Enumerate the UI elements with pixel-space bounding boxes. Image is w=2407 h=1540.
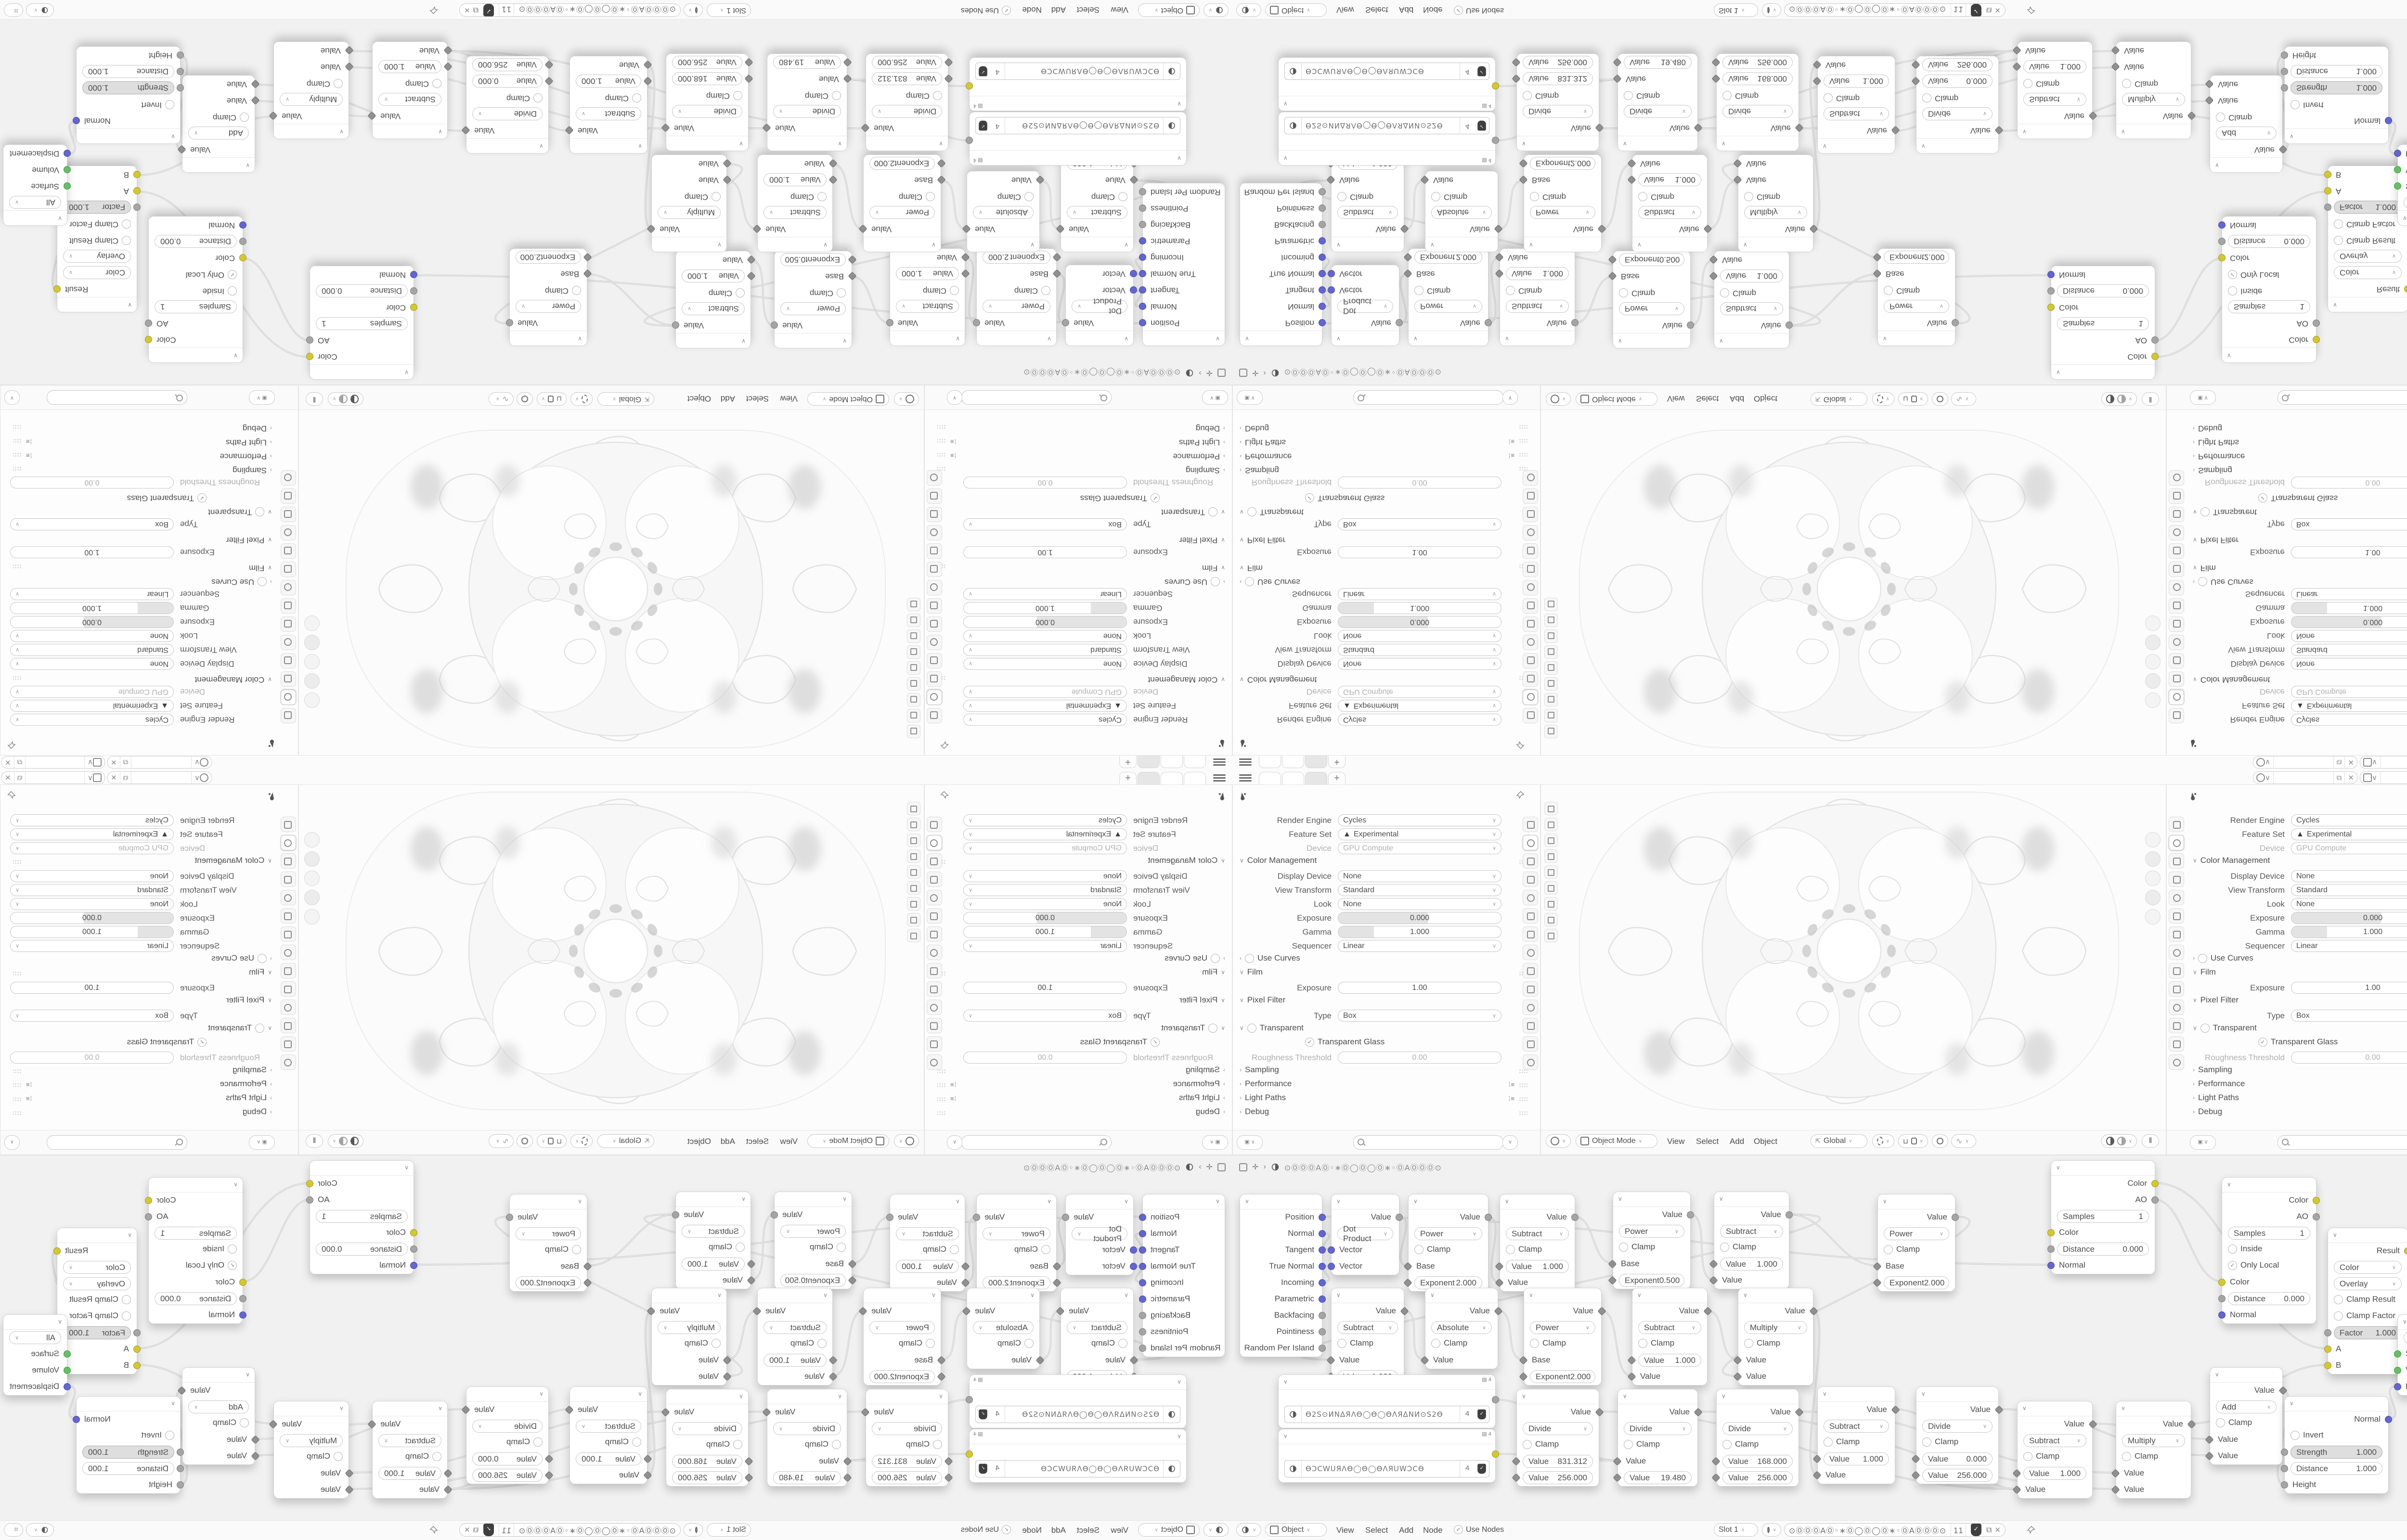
- cursor-icon[interactable]: [907, 818, 920, 831]
- copy-icon[interactable]: ⧉: [2334, 772, 2345, 783]
- falloff-icon[interactable]: ∿∨: [489, 392, 514, 406]
- output-socket[interactable]: [1319, 303, 1326, 310]
- section-header[interactable]: ∨Film: [1202, 967, 1225, 977]
- scene-name[interactable]: [131, 757, 191, 768]
- checkbox-clamp[interactable]: Clamp: [685, 192, 721, 202]
- operation-dropdown[interactable]: Divide∨: [1722, 1422, 1793, 1435]
- node-ao1[interactable]: ∨Color AO Samples 1Color Distance 0.000N…: [2051, 1160, 2155, 1274]
- output-socket[interactable]: [2385, 1416, 2392, 1423]
- section-header[interactable]: ›Debug: [1240, 1107, 1269, 1116]
- input-socket[interactable]: [2324, 187, 2331, 194]
- checkbox-clamp[interactable]: Clamp: [213, 1418, 249, 1427]
- checkbox-invert[interactable]: Invert: [141, 100, 174, 110]
- operation-dropdown[interactable]: Subtract∨: [896, 300, 959, 313]
- zoom-icon[interactable]: [2145, 851, 2161, 867]
- checkbox-clamp[interactable]: Clamp: [1091, 192, 1127, 202]
- preset-list-icon[interactable]: ⁞≡: [26, 452, 32, 459]
- node-powC[interactable]: ∨Value Power∨ ClampBase Exponent 2.000: [1877, 248, 1955, 346]
- output-socket[interactable]: [1139, 270, 1146, 277]
- input-socket[interactable]: [133, 1362, 141, 1369]
- output-socket[interactable]: [1319, 1263, 1326, 1270]
- filter-dropdown[interactable]: ▣ ∨: [249, 390, 275, 405]
- node-ao1[interactable]: ∨Color AO Samples 1Color Distance 0.000N…: [310, 266, 414, 380]
- input-socket[interactable]: [239, 254, 246, 261]
- operation-dropdown[interactable]: Absolute∨: [1431, 1321, 1492, 1334]
- menu-select[interactable]: Select: [1077, 5, 1100, 14]
- node-subR2a[interactable]: ∨Value Subtract∨ ClampValue Value 1.000: [1061, 154, 1134, 252]
- slot-dropdown[interactable]: Slot 1∧: [1714, 3, 1758, 17]
- checkbox-clamp[interactable]: Clamp: [1638, 1338, 1674, 1348]
- output-socket[interactable]: [886, 1214, 893, 1221]
- filter-dropdown[interactable]: ▣ ∨: [1202, 1135, 1228, 1150]
- viewlayer-icon[interactable]: [281, 653, 296, 668]
- output-socket[interactable]: [1485, 319, 1492, 326]
- close-icon[interactable]: ✕: [108, 772, 120, 783]
- users-count[interactable]: 11: [1951, 4, 1966, 16]
- node-powA[interactable]: ∨Value Power∨ ClampBase Exponent 2.000: [1408, 248, 1488, 346]
- checkbox-clamp[interactable]: Clamp: [2122, 79, 2158, 89]
- object-icon[interactable]: [2169, 926, 2184, 942]
- copy-icon[interactable]: ⧉: [120, 757, 131, 768]
- input-socket[interactable]: [64, 1383, 71, 1390]
- output-socket[interactable]: [1319, 254, 1326, 261]
- texture-icon[interactable]: [1523, 470, 1538, 486]
- operation-dropdown[interactable]: Divide∨: [472, 107, 543, 120]
- node-dot[interactable]: ∨Value Dot Product∨Vector Vector: [1331, 1194, 1399, 1275]
- shield-icon[interactable]: ✓: [1971, 4, 1981, 16]
- node-ao2[interactable]: ∨Color AO Samples 1 Inside ✓Only LocalCo…: [2222, 216, 2316, 363]
- checkbox-clamp[interactable]: Clamp: [605, 1437, 641, 1447]
- value-field[interactable]: Value 1.000: [378, 1467, 441, 1480]
- output-socket[interactable]: [306, 1196, 313, 1204]
- section-header[interactable]: ∨Transparent: [1240, 507, 1304, 517]
- modifiers-icon[interactable]: [1523, 945, 1538, 960]
- value-field[interactable]: Samples 1: [316, 317, 408, 330]
- select-box-icon[interactable]: [907, 725, 920, 738]
- shield-icon[interactable]: ✓: [979, 1464, 987, 1474]
- shield-icon[interactable]: ✓: [1477, 66, 1486, 77]
- search-input[interactable]: [2278, 390, 2407, 405]
- operation-dropdown[interactable]: Divide∨: [1624, 1422, 1692, 1435]
- datablock-selector[interactable]: Ɵ2S⊙ИNΔЯΛƟ◯Ɵ◯ƟΛЯΔNИ⊙S2Ɵ 4 ✓: [1284, 117, 1489, 134]
- render-icon[interactable]: [281, 690, 296, 705]
- input-socket[interactable]: [64, 150, 71, 157]
- input-socket[interactable]: [177, 84, 184, 91]
- input-socket[interactable]: [2047, 304, 2055, 311]
- nav-gizmo-icon[interactable]: [2145, 832, 2161, 847]
- editor-type-button[interactable]: ∨: [1236, 1523, 1261, 1537]
- output-icon[interactable]: [1523, 671, 1538, 687]
- section-header[interactable]: ∨Color Management: [1148, 856, 1225, 865]
- value-field-roughness-threshold[interactable]: 0.00: [10, 1052, 174, 1064]
- browse-material-button[interactable]: ∨: [1762, 1523, 1781, 1537]
- checkbox-transparent-glass[interactable]: ✓Transparent Glass: [2258, 493, 2338, 503]
- node-bump[interactable]: ∨Normal Invert Strength 1.000 Distance 1…: [2284, 46, 2389, 144]
- dropdown-device[interactable]: GPU Compute∨: [963, 686, 1127, 698]
- operation-dropdown[interactable]: Overlay∨: [2334, 1277, 2402, 1290]
- section-header[interactable]: ›Sampling: [1186, 1065, 1225, 1075]
- rotate-icon[interactable]: [907, 677, 920, 691]
- checkbox-only-local[interactable]: ✓Only Local: [2228, 1260, 2279, 1270]
- render-icon[interactable]: [927, 835, 942, 850]
- slot-dropdown[interactable]: Slot 1∧: [1714, 1523, 1758, 1537]
- node-db2[interactable]: ∨▤ 4 ƟƆCWUЯΛƟ◯Ɵ◯ƟΛЯUWƆCƟ 4 ✓: [969, 57, 1187, 111]
- input-socket[interactable]: [177, 51, 184, 59]
- dropdown-type[interactable]: Box∨: [2291, 1010, 2407, 1022]
- value-field[interactable]: Samples 1: [2228, 1227, 2310, 1240]
- checkbox-clamp-result[interactable]: Clamp Result: [2334, 1295, 2395, 1304]
- copy-icon[interactable]: ⧉: [2334, 757, 2345, 768]
- slot-dropdown[interactable]: Slot 1∧: [707, 1523, 751, 1537]
- value-field[interactable]: Value 831.312: [1523, 72, 1593, 85]
- mode-dropdown[interactable]: Object Mode∨: [1576, 1134, 1657, 1148]
- operation-dropdown[interactable]: Subtract∨: [1506, 300, 1569, 313]
- workspace-tab[interactable]: [1259, 772, 1281, 785]
- checkbox-clamp[interactable]: Clamp: [805, 1439, 841, 1449]
- shield-icon[interactable]: ✓: [979, 66, 987, 77]
- menu-node[interactable]: Node: [1022, 1526, 1042, 1535]
- drag-grip-icon[interactable]: [937, 452, 946, 457]
- copy-icon[interactable]: ⧉: [473, 5, 479, 15]
- workspace-tab[interactable]: [1184, 772, 1206, 785]
- section-header[interactable]: ›Sampling: [2193, 465, 2232, 475]
- measure-icon[interactable]: [907, 614, 920, 627]
- drag-grip-icon[interactable]: [1519, 438, 1527, 443]
- datablock-selector[interactable]: ƟƆCWUЯΛƟ◯Ɵ◯ƟΛЯUWƆCƟ 4 ✓: [1284, 63, 1489, 80]
- checkbox-only-local[interactable]: ✓Only Local: [186, 270, 237, 280]
- input-socket[interactable]: [2218, 221, 2226, 229]
- menu-select[interactable]: Select: [1696, 1137, 1719, 1146]
- use-nodes-checkbox[interactable]: ✓Use Nodes: [1454, 6, 1504, 15]
- node-div2[interactable]: ∨Value Divide∨ ClampValue Value 19.480: [1618, 1389, 1698, 1487]
- perspective-icon[interactable]: [304, 616, 320, 631]
- operation-dropdown[interactable]: Multiply∨: [658, 206, 721, 219]
- node-mul1[interactable]: ∨Value Multiply∨ ClampValue Value: [2116, 41, 2191, 139]
- shield-icon[interactable]: ✓: [483, 4, 494, 16]
- value-field[interactable]: Strength 1.000: [2291, 81, 2382, 94]
- magnet-icon[interactable]: ⊔∨: [537, 392, 567, 406]
- dropdown-look[interactable]: None∨: [2291, 630, 2407, 642]
- checkbox-transparent-glass[interactable]: ✓Transparent Glass: [1305, 493, 1385, 503]
- value-field[interactable]: Exponent 0.500: [1619, 253, 1684, 266]
- node-ao2[interactable]: ∨Color AO Samples 1 Inside ✓Only LocalCo…: [148, 216, 243, 363]
- section-header[interactable]: ∨Pixel Filter: [2193, 535, 2239, 545]
- checkbox-inside[interactable]: Inside: [2228, 286, 2262, 296]
- section-header[interactable]: ›Debug: [2193, 423, 2222, 433]
- data-icon[interactable]: [281, 1018, 296, 1033]
- filter-dropdown[interactable]: ▣ ∨: [1237, 1135, 1263, 1150]
- node-powB[interactable]: ∨Value Power∨ ClampBase Exponent 0.500: [774, 1192, 852, 1289]
- value-field[interactable]: Samples 1: [316, 1210, 408, 1223]
- object-icon[interactable]: [1523, 926, 1538, 942]
- pan-icon[interactable]: [304, 654, 320, 669]
- dropdown-render-engine[interactable]: Cycles∨: [10, 814, 174, 826]
- operation-dropdown[interactable]: Subtract∨: [576, 107, 641, 120]
- dropdown-view-transform[interactable]: Standard∨: [10, 884, 174, 896]
- close-icon[interactable]: ✕: [108, 757, 120, 768]
- operation-dropdown[interactable]: Color∨: [63, 1261, 131, 1274]
- menu-icon[interactable]: [1239, 758, 1252, 767]
- dropdown-sequencer[interactable]: Linear∨: [2291, 940, 2407, 952]
- section-header[interactable]: ›Performance: [1173, 1079, 1225, 1089]
- value-field-roughness-threshold[interactable]: 0.00: [1338, 476, 1501, 488]
- dropdown-display-device[interactable]: None∨: [963, 870, 1127, 882]
- add-primitive-icon[interactable]: [1544, 929, 1558, 942]
- output-icon[interactable]: [2169, 671, 2184, 687]
- node-div3[interactable]: ∨Value Divide∨ Clamp Value 168.000 Value…: [1716, 53, 1799, 151]
- menu-add[interactable]: Add: [1399, 5, 1413, 14]
- output-socket[interactable]: [966, 1396, 973, 1403]
- output-socket[interactable]: [771, 321, 778, 329]
- value-field[interactable]: Value 256.000: [1722, 56, 1793, 69]
- section-header[interactable]: ∨Color Management: [1240, 675, 1317, 684]
- options-dropdown[interactable]: ∨: [4, 390, 20, 405]
- node-mul1[interactable]: ∨Value Multiply∨ ClampValue Value: [273, 41, 349, 139]
- select-box-icon[interactable]: [907, 802, 920, 815]
- world-icon[interactable]: [281, 908, 296, 924]
- input-socket[interactable]: [2324, 1329, 2331, 1336]
- node-db2[interactable]: ∨▤ 4 ƟƆCWUЯΛƟ◯Ɵ◯ƟΛЯUWƆCƟ 4 ✓: [1278, 57, 1496, 111]
- add-primitive-icon[interactable]: [1544, 598, 1558, 611]
- tool-icon[interactable]: [2169, 708, 2184, 723]
- cursor-icon[interactable]: [1544, 818, 1558, 831]
- close-icon[interactable]: ✕: [2, 772, 14, 783]
- object-icon[interactable]: [927, 926, 942, 942]
- shader-node-editor[interactable]: ✛ › ⊙ⓄⓄⓄAⓄ◦∗Ⓞ◯Ⓞ◯Ⓞ∗◦ⓄAⓄⓄⓄ⊙ ∨Position Norm…: [0, 1155, 1232, 1540]
- magnet-icon[interactable]: ⊔∨: [1898, 1134, 1928, 1148]
- checkbox-transparent-glass[interactable]: ✓Transparent Glass: [127, 493, 207, 503]
- viewlayer-name[interactable]: [25, 772, 84, 783]
- output-socket[interactable]: [1319, 1230, 1326, 1237]
- output-socket[interactable]: [145, 1213, 152, 1220]
- value-field[interactable]: Exponent 0.500: [1619, 1274, 1684, 1287]
- shading-mode-buttons[interactable]: ∨: [2101, 1134, 2137, 1148]
- drag-grip-icon[interactable]: [1519, 1097, 1527, 1102]
- shader-node-editor[interactable]: ✛ › ⊙ⓄⓄⓄAⓄ◦∗Ⓞ◯Ⓞ◯Ⓞ∗◦ⓄAⓄⓄⓄ⊙ ∨Position Norm…: [1232, 1155, 2407, 1540]
- value-field[interactable]: Distance 0.000: [316, 1243, 408, 1256]
- section-header[interactable]: ›Sampling: [233, 465, 272, 475]
- output-socket[interactable]: [1319, 1345, 1326, 1352]
- material-icon[interactable]: [2169, 488, 2184, 504]
- section-header[interactable]: ›Use Curves: [2193, 953, 2253, 963]
- checkbox-clamp[interactable]: Clamp: [1530, 192, 1566, 202]
- checkbox-clamp[interactable]: Clamp: [1337, 1338, 1373, 1348]
- input-socket[interactable]: [1328, 286, 1335, 294]
- output-socket[interactable]: [1139, 1296, 1146, 1303]
- input-socket[interactable]: [1328, 1263, 1335, 1270]
- input-socket[interactable]: [177, 1449, 184, 1456]
- value-field[interactable]: Distance 0.000: [2057, 284, 2149, 297]
- section-header[interactable]: ›Performance: [1173, 451, 1225, 461]
- checkbox-transparent-glass[interactable]: ✓Transparent Glass: [1305, 1037, 1385, 1047]
- checkbox-clamp[interactable]: Clamp: [1638, 192, 1674, 202]
- users-count[interactable]: 11: [499, 1524, 514, 1536]
- operation-dropdown[interactable]: Subtract∨: [1720, 302, 1783, 315]
- output-socket[interactable]: [973, 319, 980, 326]
- operation-dropdown[interactable]: Divide∨: [773, 1422, 841, 1435]
- dropdown-type[interactable]: Box∨: [963, 518, 1127, 530]
- value-field[interactable]: Distance 1.000: [2291, 65, 2382, 78]
- dropdown-view-transform[interactable]: Standard∨: [963, 644, 1127, 656]
- operation-dropdown[interactable]: Subtract∨: [682, 302, 745, 315]
- value-field-gamma[interactable]: 1.000: [2291, 602, 2407, 614]
- operation-dropdown[interactable]: Power∨: [1414, 1227, 1482, 1240]
- world-icon[interactable]: [1523, 616, 1538, 632]
- node-geo[interactable]: ∨Position Normal Tangent True Normal Inc…: [1240, 183, 1322, 346]
- dropdown-view-transform[interactable]: Standard∨: [1338, 644, 1501, 656]
- editor-type-button[interactable]: ∨: [894, 392, 919, 406]
- pin-icon[interactable]: [2027, 1526, 2035, 1534]
- input-socket[interactable]: [177, 1465, 184, 1472]
- operation-dropdown[interactable]: Multiply∨: [2122, 1434, 2185, 1447]
- node-div0[interactable]: ∨Value Divide∨ Clamp Value 0.000 Value 2…: [466, 1386, 549, 1484]
- output-socket[interactable]: [1319, 319, 1326, 326]
- section-header[interactable]: ∨Pixel Filter: [226, 535, 272, 545]
- operation-dropdown[interactable]: Add∨: [188, 127, 249, 140]
- checkbox-inside[interactable]: Inside: [2228, 1244, 2262, 1254]
- snap-target-icon[interactable]: ∨: [570, 392, 593, 406]
- node-mulR2[interactable]: ∨Value Multiply∨ ClampValue Value: [651, 1288, 727, 1386]
- checkbox-clamp[interactable]: Clamp: [906, 91, 942, 101]
- value-field[interactable]: Distance 0.000: [316, 284, 408, 297]
- operation-dropdown[interactable]: Add∨: [2216, 127, 2277, 140]
- add-primitive-icon[interactable]: [907, 598, 920, 611]
- checkbox-clamp[interactable]: Clamp: [706, 1439, 742, 1449]
- value-field[interactable]: Value 1.000: [2023, 60, 2086, 73]
- modifiers-icon[interactable]: [281, 945, 296, 960]
- operation-dropdown[interactable]: Add∨: [188, 1400, 249, 1413]
- output-icon[interactable]: [281, 671, 296, 687]
- zoom-icon[interactable]: [304, 673, 320, 689]
- operation-dropdown[interactable]: Dot Product∨: [1072, 300, 1127, 313]
- viewlayer-selector[interactable]: ∨ ⧉ ✕: [1, 756, 105, 769]
- checkbox-clamp[interactable]: Clamp: [1824, 93, 1860, 103]
- transform-icon[interactable]: [1544, 881, 1558, 895]
- pin-icon[interactable]: [940, 741, 949, 749]
- shader-node-editor[interactable]: ✛ › ⊙ⓄⓄⓄAⓄ◦∗Ⓞ◯Ⓞ◯Ⓞ∗◦ⓄAⓄⓄⓄ⊙ ∨Position Norm…: [0, 0, 1232, 385]
- value-field[interactable]: Value 256.000: [472, 58, 543, 71]
- object-icon[interactable]: [927, 598, 942, 614]
- checkbox-clamp[interactable]: Clamp: [1619, 288, 1655, 298]
- preset-list-icon[interactable]: ⁞≡: [950, 438, 956, 445]
- shading-material-icon[interactable]: [2106, 395, 2114, 403]
- node-powB[interactable]: ∨Value Power∨ ClampBase Exponent 0.500: [774, 251, 852, 348]
- value-field-exposure[interactable]: 1.00: [1338, 546, 1501, 558]
- output-socket[interactable]: [1139, 1214, 1146, 1221]
- magnet-icon[interactable]: ⊔∨: [537, 1134, 567, 1148]
- value-field[interactable]: Value 831.312: [872, 1455, 942, 1468]
- node-db1[interactable]: ∨▤ 4 Ɵ2S⊙ИNΔЯΛƟ◯Ɵ◯ƟΛЯΔNИ⊙S2Ɵ 4 ✓: [1278, 112, 1496, 166]
- value-field[interactable]: Value 1.000: [1824, 75, 1889, 88]
- world-icon[interactable]: [2169, 908, 2184, 924]
- section-header[interactable]: ›Use Curves: [1240, 953, 1300, 963]
- operation-dropdown[interactable]: Subtract∨: [576, 1420, 641, 1433]
- node-ao2[interactable]: ∨Color AO Samples 1 Inside ✓Only LocalCo…: [2222, 1177, 2316, 1324]
- shading-rendered-icon[interactable]: [2117, 395, 2125, 403]
- operation-dropdown[interactable]: Multiply∨: [280, 93, 343, 106]
- section-header[interactable]: ›Sampling: [1186, 465, 1225, 475]
- data-icon[interactable]: [2169, 1018, 2184, 1033]
- dropdown-sequencer[interactable]: Linear∨: [963, 940, 1127, 952]
- material-icon[interactable]: [1523, 1036, 1538, 1052]
- value-field-exposure[interactable]: 0.000: [10, 616, 174, 628]
- output-socket[interactable]: [1139, 1312, 1146, 1319]
- section-header[interactable]: ∨Color Management: [2193, 675, 2270, 684]
- menu-node[interactable]: Node: [1022, 5, 1042, 14]
- render-icon[interactable]: [1523, 690, 1538, 705]
- dropdown-view-transform[interactable]: Standard∨: [2291, 884, 2407, 896]
- filter-dropdown[interactable]: ▣ ∨: [249, 1135, 275, 1150]
- data-icon[interactable]: [927, 507, 942, 522]
- operation-dropdown[interactable]: Power∨: [780, 302, 846, 315]
- mode-dropdown[interactable]: Object Mode∨: [807, 1134, 889, 1148]
- editor-type-button[interactable]: ∨: [1203, 3, 1229, 17]
- node-subB[interactable]: ∨Value Subtract∨ Clamp Value 1.000Value: [1714, 1192, 1789, 1289]
- checkbox-clamp[interactable]: Clamp: [1530, 1338, 1566, 1348]
- node-subR2a[interactable]: ∨Value Subtract∨ ClampValue Value 1.000: [1331, 1288, 1404, 1386]
- rotate-icon[interactable]: [1544, 849, 1558, 863]
- dropdown-device[interactable]: GPU Compute∨: [10, 686, 174, 698]
- node-mout[interactable]: ∨ All∨Surface Volume Displacement: [2397, 1314, 2407, 1396]
- value-field[interactable]: Value 1.000: [764, 1354, 827, 1367]
- checkbox-clamp[interactable]: Clamp: [1720, 288, 1756, 298]
- output-icon[interactable]: [281, 853, 296, 869]
- close-icon[interactable]: ✕: [2345, 757, 2357, 768]
- node-add1[interactable]: ∨Value Add∨ ClampValue Value: [182, 75, 255, 173]
- value-field[interactable]: Value 831.312: [872, 72, 942, 85]
- drag-grip-icon[interactable]: [1519, 1083, 1527, 1088]
- node-div2[interactable]: ∨Value Divide∨ ClampValue Value 19.480: [1618, 53, 1698, 151]
- workspace-tab[interactable]: [1161, 772, 1183, 785]
- checkbox-clamp[interactable]: Clamp: [2122, 1451, 2158, 1461]
- value-field-exposure[interactable]: 0.000: [1338, 616, 1501, 628]
- physics-icon[interactable]: [281, 543, 296, 559]
- input-socket[interactable]: [2218, 1279, 2226, 1286]
- operation-dropdown[interactable]: Color∨: [2334, 1261, 2402, 1274]
- output-socket[interactable]: [2151, 1196, 2159, 1204]
- checkbox-clamp[interactable]: Clamp: [1506, 286, 1542, 295]
- tool-icon[interactable]: [927, 817, 942, 832]
- checkbox-transparent-glass[interactable]: ✓Transparent Glass: [2258, 1037, 2338, 1047]
- operation-dropdown[interactable]: Power∨: [1530, 206, 1595, 219]
- output-socket[interactable]: [1139, 254, 1146, 261]
- scene-icon[interactable]: [2169, 890, 2184, 905]
- filter-dropdown[interactable]: ▣ ∨: [2190, 1135, 2216, 1150]
- output-socket[interactable]: [145, 1197, 152, 1204]
- operation-dropdown[interactable]: Multiply∨: [2122, 93, 2185, 106]
- operation-dropdown[interactable]: Subtract∨: [1638, 1321, 1701, 1334]
- output-socket[interactable]: [1952, 319, 1959, 326]
- drag-grip-icon[interactable]: [13, 452, 22, 457]
- scene-name[interactable]: [2274, 772, 2334, 783]
- particles-icon[interactable]: [927, 963, 942, 978]
- node-div0[interactable]: ∨Value Divide∨ Clamp Value 0.000 Value 2…: [1916, 1386, 1999, 1484]
- dropdown-feature-set[interactable]: ▲Experimental∨: [2291, 700, 2407, 712]
- shading-material-icon[interactable]: [2106, 1137, 2114, 1145]
- input-socket[interactable]: [239, 1311, 246, 1319]
- snap-target-icon[interactable]: ∨: [1872, 392, 1894, 406]
- output-socket[interactable]: [1139, 237, 1146, 244]
- menu-node[interactable]: Node: [1423, 5, 1443, 14]
- node-dot[interactable]: ∨Value Dot Product∨Vector Vector: [1065, 1194, 1134, 1275]
- output-socket[interactable]: [2404, 1247, 2407, 1255]
- pause-icon[interactable]: ‖: [306, 392, 323, 406]
- drag-grip-icon[interactable]: [937, 1083, 946, 1088]
- viewlayer-name[interactable]: [2381, 772, 2407, 783]
- shader-node-editor[interactable]: ✛ › ⊙ⓄⓄⓄAⓄ◦∗Ⓞ◯Ⓞ◯Ⓞ∗◦ⓄAⓄⓄⓄ⊙ ∨Position Norm…: [1232, 0, 2407, 385]
- value-field[interactable]: Value 1.000: [378, 60, 441, 73]
- tool-icon[interactable]: [1523, 708, 1538, 723]
